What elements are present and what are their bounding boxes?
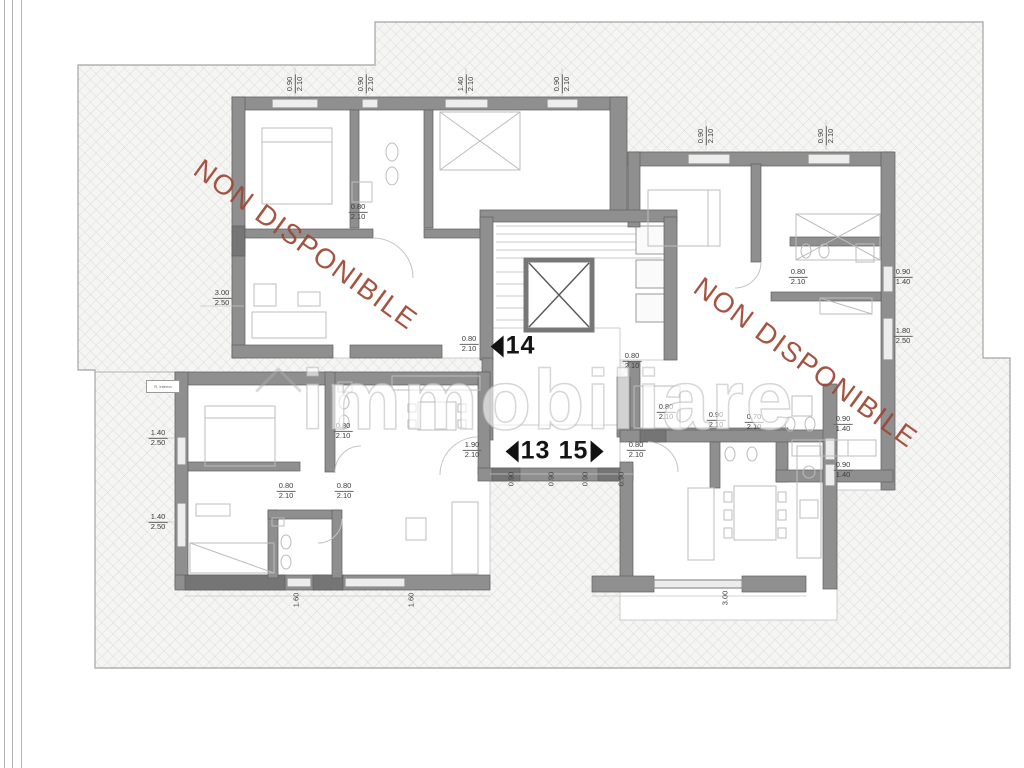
dimension-label: 3.00: [722, 590, 731, 607]
brand-watermark-text: immobiliare: [301, 352, 794, 449]
dimension-label: 0.90: [582, 471, 591, 488]
dimension-label: 1.60: [408, 592, 417, 609]
dimension-label: 0.902.10: [553, 75, 571, 94]
dimension-label: 1.60: [293, 592, 302, 609]
dimension-label: 0.902.10: [357, 75, 375, 94]
dimension-label: 3.002.50: [213, 289, 232, 307]
closet-boxes: [636, 226, 668, 322]
dimension-label: 1.402.50: [149, 513, 168, 531]
dimension-label: 1.402.10: [457, 75, 475, 94]
dimension-label: 0.90: [508, 471, 517, 488]
dimension-label: 0.902.10: [697, 127, 715, 146]
dimension-label: 0.902.10: [817, 127, 835, 146]
dimension-label: 0.901.40: [894, 268, 913, 286]
brand-house-icon: [255, 367, 302, 414]
dimension-label: 1.802.50: [894, 327, 913, 345]
brand-watermark: immobiliare: [262, 352, 794, 449]
dimension-label: 0.901.40: [834, 461, 853, 479]
dimension-label: 0.802.10: [277, 482, 296, 500]
dimension-label: 0.802.10: [349, 203, 368, 221]
dimension-label: 0.90: [618, 471, 627, 488]
dimension-label: 0.802.10: [789, 268, 808, 286]
floor-plan-page: 3.002.501.402.501.402.500.802.100.802.10…: [0, 0, 1024, 768]
dimension-label: 0.802.10: [460, 335, 479, 353]
dimension-label: 0.802.10: [335, 482, 354, 500]
dimension-label: 0.901.40: [834, 415, 853, 433]
reference-label-box: R. interno: [146, 380, 180, 393]
dimension-label: 0.902.10: [286, 75, 304, 94]
dimension-label: 1.402.50: [149, 429, 168, 447]
dimension-label: 0.90: [548, 471, 557, 488]
